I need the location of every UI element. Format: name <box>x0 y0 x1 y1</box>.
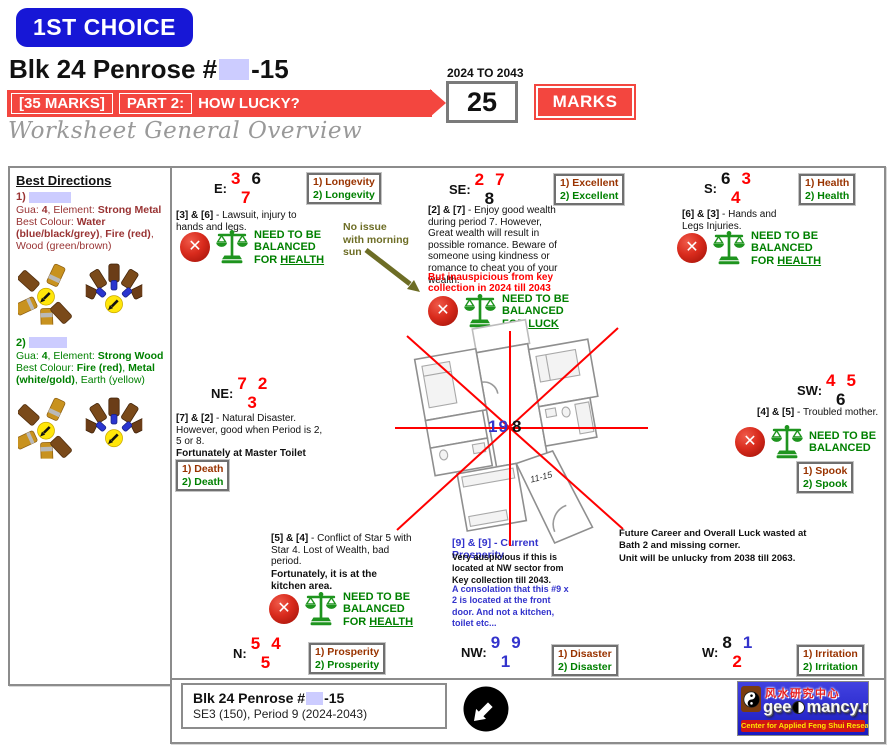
tag-line-1: 1) Health <box>805 177 849 190</box>
balance-warning-e: NEED TO BE BALANCED FOR HEALTH <box>180 229 324 266</box>
note-ne-fortunately: Fortunately at Master Toilet <box>176 448 336 460</box>
tag-line-2: 2) Prosperity <box>315 659 379 672</box>
redacted-unit-number <box>306 692 323 705</box>
direction-nw: NW: 99 1 <box>461 634 521 670</box>
red-x-icon <box>735 427 765 457</box>
banner-question: HOW LUCKY? <box>198 95 300 112</box>
balance-scale-icon <box>712 230 746 266</box>
balance-scale-icon <box>215 229 249 265</box>
colour-line: Best Colour: Water (blue/black/grey), Fi… <box>16 216 174 252</box>
redacted-name <box>29 192 71 203</box>
direction-label: N: <box>233 646 247 661</box>
balance-warning-s: NEED TO BE BALANCED FOR HEALTH <box>677 230 821 267</box>
note-ne: [7] & [2] - Natural Disaster. However, g… <box>176 413 328 448</box>
compass-arc-icon <box>84 395 144 459</box>
note-sw: [4] & [5] - Troubled mother. <box>757 407 878 419</box>
direction-n: N: 54 5 <box>233 635 281 671</box>
balance-scale-icon <box>304 591 338 627</box>
balance-text: NEED TO BE BALANCED <box>809 430 876 455</box>
direction-compass-icons <box>18 261 174 325</box>
address-line-2: SE3 (150), Period 9 (2024-2043) <box>193 707 435 721</box>
note-s: [6] & [3] - Hands and Legs Injuries. <box>682 209 800 232</box>
direction-compass-icons <box>18 395 174 459</box>
period-range-label: 2024 TO 2043 <box>447 66 524 80</box>
tag-line-2: 2) Disaster <box>558 661 612 674</box>
tag-box-nw: 1) Disaster 2) Disaster <box>552 645 618 676</box>
direction-ne: NE: 72 3 <box>211 375 267 411</box>
best-directions-panel: Best Directions 1) Gua: 4, Element: Stro… <box>8 166 182 686</box>
page-title: Blk 24 Penrose # -15 <box>9 54 289 85</box>
tag-box-e: 1) Longevity 2) Longevity <box>307 173 381 204</box>
direction-s: S: 63 4 <box>704 170 751 206</box>
tag-line-2: 2) Spook <box>803 478 847 491</box>
note-se-warning: But inauspicious from key collection in … <box>428 272 580 294</box>
tag-line-1: 1) Irritation <box>803 648 858 661</box>
entry-index: 1) <box>16 191 174 204</box>
tag-line-1: 1) Spook <box>803 465 847 478</box>
tag-line-1: 1) Excellent <box>560 177 618 190</box>
best-direction-entry-1: 1) Gua: 4, Element: Strong Metal Best Co… <box>16 191 174 325</box>
compass-fan-icon <box>18 261 74 325</box>
note-prosperity-extra: A consolation that this #9 x 2 is locate… <box>452 584 574 629</box>
logo-tagline: Center for Applied Feng Shui Research <box>741 720 865 732</box>
red-x-icon <box>269 594 299 624</box>
redacted-name <box>29 337 67 348</box>
best-direction-entry-2: 2) Gua: 4, Element: Strong Wood Best Col… <box>16 337 174 459</box>
tag-box-sw: 1) Spook 2) Spook <box>797 462 853 493</box>
score-box: 25 <box>446 81 518 123</box>
yin-yang-dot-icon <box>792 701 805 714</box>
part2-banner: [35 MARKS] PART 2: HOW LUCKY? <box>7 90 432 117</box>
compass-arc-icon <box>84 261 144 325</box>
red-x-icon <box>677 233 707 263</box>
direction-label: S: <box>704 181 717 196</box>
balance-scale-icon <box>770 424 804 460</box>
part2-chip: PART 2: <box>119 93 192 114</box>
compass-fan-icon <box>18 395 74 459</box>
first-choice-badge[interactable]: 1ST CHOICE <box>16 8 193 47</box>
tag-box-w: 1) Irritation 2) Irritation <box>797 645 864 676</box>
logo-brand-text: geemancy.net <box>763 698 869 717</box>
geomancy-logo[interactable]: 风水研究中心 geemancy.net Center for Applied F… <box>737 681 869 736</box>
address-prefix: Blk 24 Penrose # <box>193 690 305 707</box>
entry-index: 2) <box>16 337 174 350</box>
address-line-1: Blk 24 Penrose # -15 <box>193 690 435 707</box>
address-box: Blk 24 Penrose # -15 SE3 (150), Period 9… <box>181 683 447 729</box>
direction-label: NE: <box>211 386 233 401</box>
tag-line-1: 1) Death <box>182 463 223 476</box>
worksheet-page: 1ST CHOICE Blk 24 Penrose # -15 [35 MARK… <box>0 0 895 750</box>
redacted-unit-number <box>219 59 249 80</box>
worksheet-subtitle: Worksheet General Overview <box>8 118 362 144</box>
gua-line: Gua: 4, Element: Strong Metal <box>16 204 174 216</box>
balance-text: NEED TO BE BALANCED FOR HEALTH <box>254 229 324 266</box>
direction-sw: SW: 45 6 <box>797 372 856 408</box>
tag-box-se: 1) Excellent 2) Excellent <box>554 174 624 205</box>
tag-box-s: 1) Health 2) Health <box>799 174 855 205</box>
note-kitchen-fortunately: Fortunately, it is at the kitchen area. <box>271 569 381 592</box>
tag-line-2: 2) Longevity <box>313 189 375 202</box>
direction-label: W: <box>702 645 718 660</box>
floor-plan <box>390 316 658 564</box>
balance-text: NEED TO BE BALANCED FOR HEALTH <box>343 591 413 628</box>
best-directions-heading: Best Directions <box>16 173 174 188</box>
colour-line: Best Colour: Fire (red), Metal (white/go… <box>16 362 174 386</box>
yin-yang-icon <box>741 686 761 712</box>
tag-box-ne: 1) Death 2) Death <box>176 460 229 491</box>
direction-label: E: <box>214 181 227 196</box>
banner-arrow-icon <box>430 89 446 117</box>
title-suffix: -15 <box>251 54 289 85</box>
tag-line-2: 2) Death <box>182 476 223 489</box>
direction-label: SW: <box>797 383 822 398</box>
marks-button[interactable]: MARKS <box>536 86 634 118</box>
title-prefix: Blk 24 Penrose # <box>9 54 217 85</box>
facing-direction-arrow-icon <box>462 685 510 733</box>
olive-arrow-icon <box>363 247 427 299</box>
tag-line-2: 2) Excellent <box>560 190 618 203</box>
direction-e: E: 36 7 <box>214 170 261 206</box>
direction-se: SE: 27 8 <box>449 171 505 207</box>
balance-text: NEED TO BE BALANCED FOR HEALTH <box>751 230 821 267</box>
marks-bracket-chip: [35 MARKS] <box>11 93 113 114</box>
tag-box-n: 1) Prosperity 2) Prosperity <box>309 643 385 674</box>
tag-line-1: 1) Disaster <box>558 648 612 661</box>
address-suffix: -15 <box>324 690 344 707</box>
tag-line-1: 1) Longevity <box>313 176 375 189</box>
red-x-icon <box>180 232 210 262</box>
tag-line-2: 2) Irritation <box>803 661 858 674</box>
tag-line-1: 1) Prosperity <box>315 646 379 659</box>
gua-line: Gua: 4, Element: Strong Wood <box>16 350 174 362</box>
plan-center-stars: 198 <box>488 418 522 435</box>
direction-label: NW: <box>461 645 487 660</box>
direction-label: SE: <box>449 182 471 197</box>
direction-w: W: 81 2 <box>702 634 752 670</box>
balance-warning-kitchen: NEED TO BE BALANCED FOR HEALTH <box>269 591 413 628</box>
balance-warning-sw: NEED TO BE BALANCED <box>735 424 876 460</box>
tag-line-2: 2) Health <box>805 190 849 203</box>
